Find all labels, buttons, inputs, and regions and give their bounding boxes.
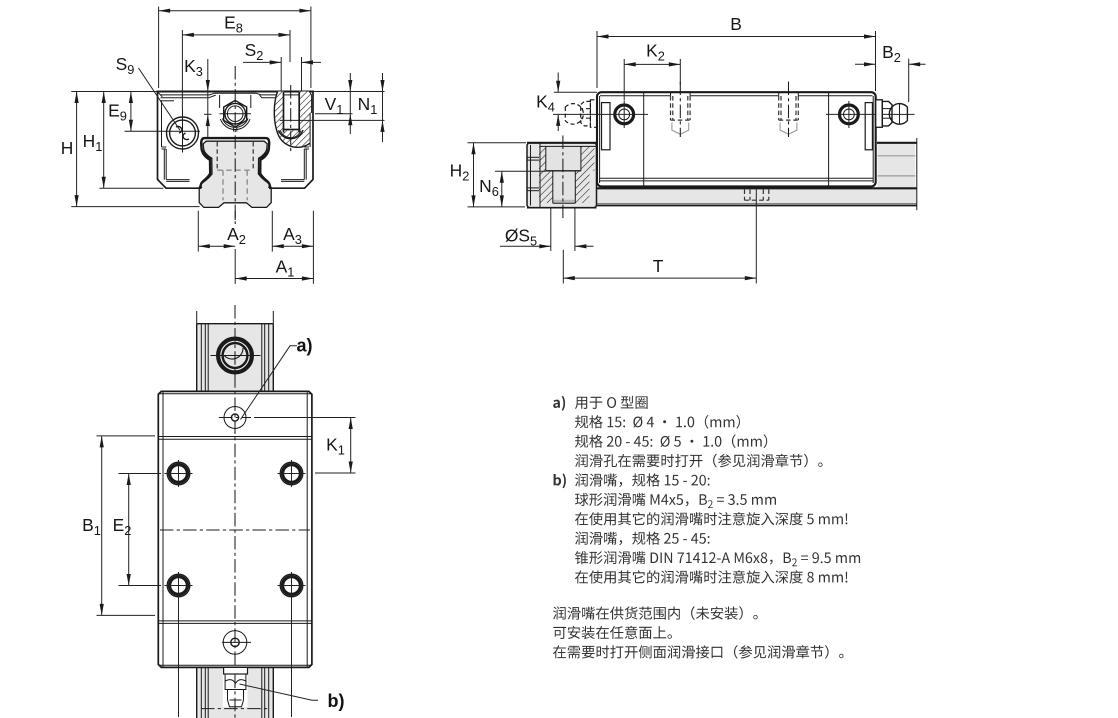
svg-text:A3: A3: [283, 224, 302, 247]
svg-text:A1: A1: [276, 257, 295, 280]
svg-text:S2: S2: [245, 40, 264, 63]
svg-text:N1: N1: [358, 94, 378, 117]
svg-text:a): a): [297, 336, 313, 356]
svg-text:B2: B2: [882, 42, 901, 65]
svg-text:ØS5: ØS5: [505, 226, 537, 249]
svg-text:B: B: [730, 14, 742, 34]
svg-text:N6: N6: [479, 176, 499, 199]
svg-text:V1: V1: [325, 94, 344, 117]
svg-text:H: H: [61, 138, 74, 158]
svg-text:A2: A2: [227, 224, 246, 247]
svg-text:T: T: [653, 256, 664, 276]
svg-text:b): b): [328, 691, 345, 711]
svg-text:B1: B1: [82, 515, 101, 538]
svg-text:K3: K3: [184, 56, 203, 79]
svg-text:S9: S9: [116, 54, 135, 77]
svg-text:H2: H2: [450, 161, 470, 184]
svg-text:H1: H1: [83, 131, 103, 154]
svg-text:E9: E9: [108, 101, 127, 124]
svg-text:K4: K4: [536, 92, 555, 115]
svg-text:K1: K1: [326, 435, 345, 458]
svg-text:E8: E8: [224, 13, 243, 36]
svg-text:K2: K2: [646, 41, 665, 64]
